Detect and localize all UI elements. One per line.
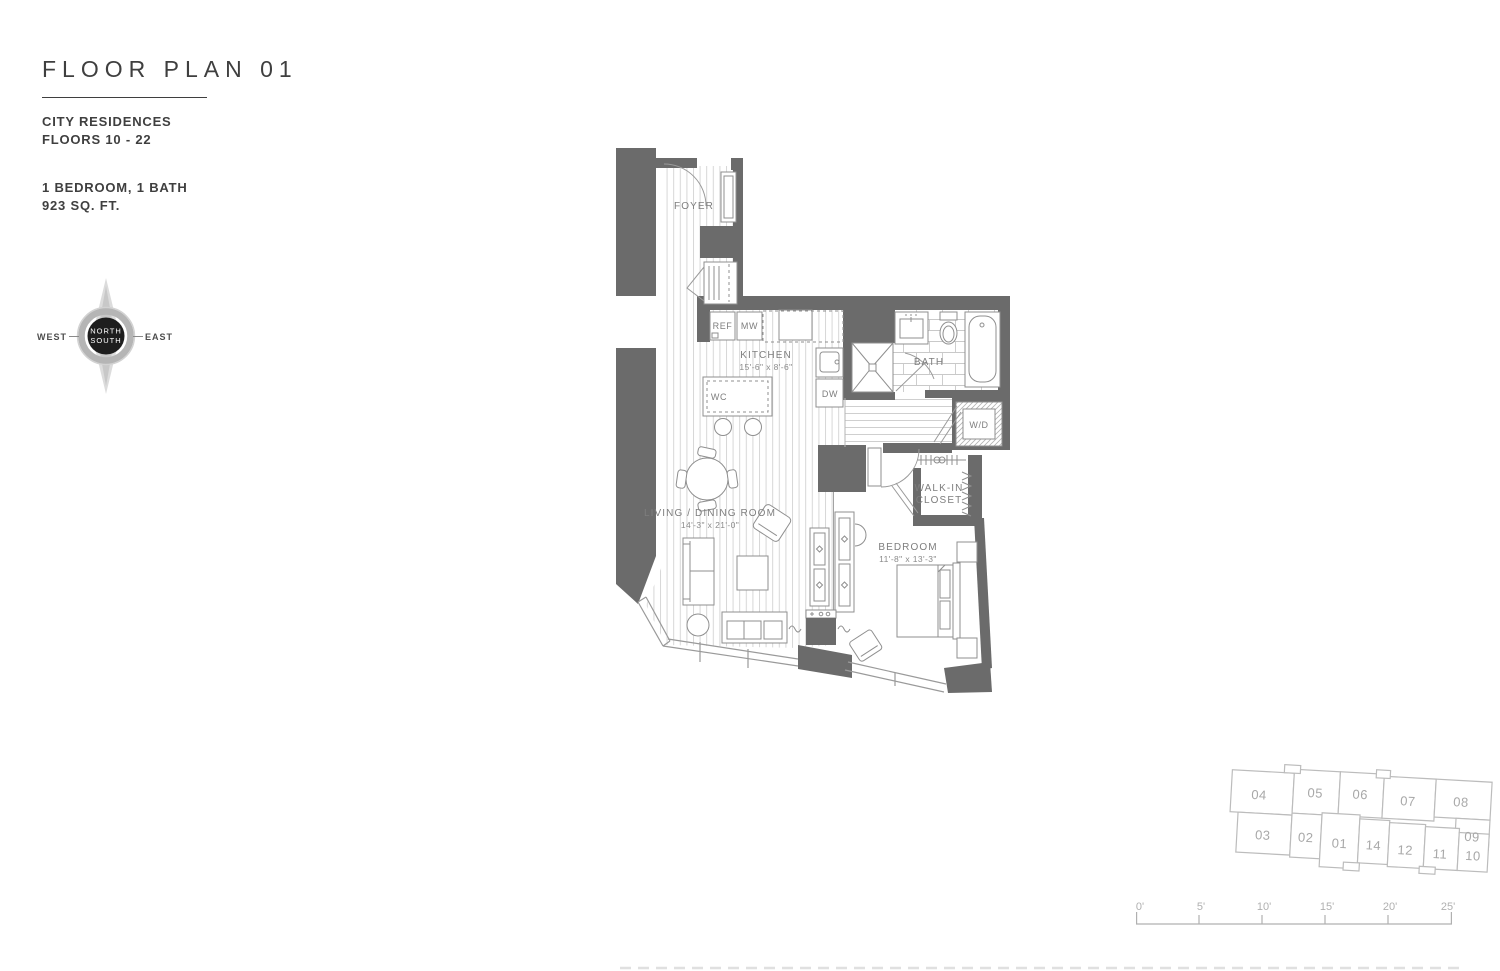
squiggle-symbol-right	[838, 626, 850, 632]
wall-left-lower	[616, 348, 656, 604]
scale-label-25: 25'	[1441, 901, 1455, 913]
bath-label: BATH	[914, 357, 944, 368]
keyplan-label-12: 12	[1397, 842, 1413, 858]
compass-rose: NORTH SOUTH WEST EAST	[37, 278, 173, 394]
stove	[779, 310, 812, 340]
wic-label-line2: CLOSET	[916, 495, 963, 506]
bedroom-label: BEDROOM	[878, 542, 937, 553]
side-table	[687, 614, 709, 636]
wic-label-line1: WALK-IN	[915, 483, 964, 494]
compass-west-label: WEST	[37, 332, 67, 342]
keyplan-label-01: 01	[1331, 835, 1347, 851]
building-keyplan: 04 05 06 07 08 09 03 02 01 14 12 11 10	[1227, 762, 1492, 878]
wall-bath-plumbing	[843, 296, 895, 343]
keyplan-label-04: 04	[1251, 787, 1267, 803]
keyplan-label-14: 14	[1365, 837, 1381, 853]
keyplan-notch-3	[1343, 862, 1359, 871]
floor-plan-sheet: NORTH SOUTH WEST EAST	[0, 0, 1500, 971]
nightstand-1	[957, 542, 977, 562]
wall-shower-left	[843, 343, 852, 400]
kitchen-dimensions: 15'-6" x 8'-6"	[739, 362, 792, 372]
keyplan-notch-4	[1419, 866, 1435, 874]
keyplan-notch-1	[1284, 765, 1300, 774]
wall-left-upper	[616, 148, 656, 296]
bar-stool-2	[745, 419, 762, 436]
keyplan-label-02: 02	[1298, 830, 1314, 846]
compass-north-label: NORTH	[90, 327, 122, 336]
foyer-label: FOYER	[674, 201, 714, 212]
scale-label-0: 0'	[1136, 901, 1144, 913]
keyplan-notch-2	[1376, 770, 1390, 779]
bedroom-chair-arc	[855, 524, 866, 546]
living-label: LIVING / DINING ROOM	[644, 508, 776, 519]
wall-bedroom-corner	[944, 662, 992, 693]
headboard	[953, 563, 960, 639]
keyplan-label-07: 07	[1400, 793, 1416, 809]
foyer-shelving	[721, 172, 736, 222]
wall-foyer-column	[700, 226, 743, 258]
dining-chair-west	[676, 470, 687, 489]
compass-east-label: EAST	[145, 332, 173, 342]
bed-pillow-2	[940, 601, 950, 629]
nightstand-2	[957, 638, 977, 658]
unit-floor-plan: FOYER REF MW DW WC KITCHEN 15'-6" x 8'-6…	[616, 148, 1010, 693]
compass-south-label: SOUTH	[90, 336, 121, 345]
keyplan-units	[1227, 762, 1492, 878]
dining-chair-east	[727, 469, 738, 488]
wc-label: WC	[711, 392, 727, 402]
dining-table	[686, 458, 728, 500]
scale-label-10: 10'	[1257, 901, 1271, 913]
scale-label-15: 15'	[1320, 901, 1334, 913]
wall-bath-bottom	[925, 390, 1010, 398]
wall-window-column	[798, 645, 852, 678]
ref-label: REF	[713, 321, 733, 331]
mw-label: MW	[741, 321, 758, 331]
keyplan-label-11: 11	[1432, 846, 1447, 862]
toilet-tank	[940, 312, 957, 320]
bedroom-armchair	[849, 629, 883, 662]
fireplace-box	[806, 618, 836, 645]
wall-hall-bottom	[883, 443, 952, 453]
wic-top-rod	[917, 455, 966, 465]
coffee-table	[737, 556, 768, 590]
dw-label: DW	[822, 389, 838, 399]
bedroom-door-leaf	[868, 448, 881, 486]
wd-label: W/D	[969, 420, 988, 430]
scale-label-20: 20'	[1383, 901, 1397, 913]
bedroom-dimensions: 11'-8" x 13'-3"	[879, 554, 937, 564]
media-console	[722, 612, 787, 643]
wall-kitchen-left-stub	[697, 306, 710, 342]
living-wardrobe	[810, 528, 829, 606]
scale-label-5: 5'	[1197, 901, 1205, 913]
wall-shower-bottom	[843, 392, 895, 400]
living-dimensions: 14'-3" x 21'-0"	[681, 520, 739, 530]
wall-foyer-top-left	[656, 158, 697, 168]
shower-drain	[869, 364, 876, 371]
keyplan-label-08: 08	[1453, 794, 1469, 810]
bed-pillow-1	[940, 570, 950, 598]
bar-stool-1	[715, 419, 732, 436]
keyplan-label-09: 09	[1464, 829, 1480, 845]
bedroom-dresser	[835, 512, 854, 612]
keyplan-label-10: 10	[1465, 848, 1481, 864]
keyplan-label-06: 06	[1352, 786, 1368, 802]
scale-bar: 0' 5' 10' 15' 20' 25'	[1136, 901, 1455, 924]
wall-bedroom-entry-block	[818, 445, 866, 492]
kitchen-label: KITCHEN	[740, 350, 792, 361]
walk-in-closet: WALK-IN CLOSET	[892, 455, 971, 516]
bedroom-window	[845, 662, 946, 692]
keyplan-label-05: 05	[1307, 785, 1323, 801]
keyplan-label-03: 03	[1255, 827, 1271, 843]
